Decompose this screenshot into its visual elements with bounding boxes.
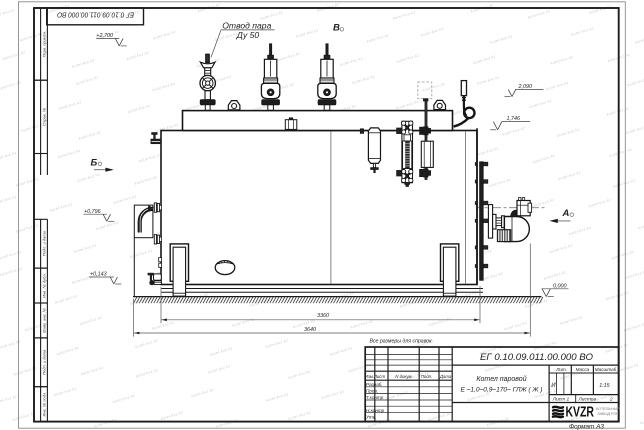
svg-text:Разраб.: Разраб. [366,382,383,387]
svg-text:В: В [333,23,340,34]
svg-text:Б: Б [91,158,98,169]
svg-text:Инв. № подл.: Инв. № подл. [42,392,47,417]
svg-text:Масса: Масса [576,367,590,372]
svg-text:Н.контр: Н.контр [366,408,385,413]
svg-text:3640: 3640 [304,327,316,333]
svg-text:Лит.: Лит. [555,367,567,372]
svg-text:Формат А3: Формат А3 [569,424,604,430]
svg-text:Ду 50: Ду 50 [236,30,260,40]
svg-text:ЕГ 0.10.09.011.00.000 ВО: ЕГ 0.10.09.011.00.000 ВО [57,10,134,19]
svg-text:Подп. и дата: Подп. и дата [42,349,47,375]
svg-text:ЗАВОД РЗР: ЗАВОД РЗР [597,412,619,416]
svg-text:Взам. инв. №: Взам. инв. № [42,307,47,332]
svg-text:1:15: 1:15 [599,383,610,389]
svg-text:Лист 1: Лист 1 [552,397,570,403]
svg-text:Справ. №: Справ. № [42,107,47,126]
svg-text:Котел паровой: Котел паровой [476,375,526,383]
svg-text:Перв. примен.: Перв. примен. [42,31,47,58]
svg-text:Е –1,0–0,9–170– ГЛЖ ( Ж ): Е –1,0–0,9–170– ГЛЖ ( Ж ) [461,387,543,394]
svg-text:KVZR: KVZR [566,405,595,421]
svg-text:Масштаб: Масштаб [595,367,617,372]
svg-text:Пров.: Пров. [366,389,378,394]
svg-text:Дата: Дата [439,374,452,379]
svg-text:Инв. № дубл.: Инв. № дубл. [42,273,47,298]
svg-text:Изм.Лист: Изм.Лист [365,374,386,379]
svg-text:Все размеры для справок: Все размеры для справок [370,338,433,344]
svg-text:N докум.: N докум. [395,374,412,379]
svg-text:А: А [562,208,570,219]
svg-text:Утв.: Утв. [366,414,376,419]
svg-text:КОТЕЛЬНЫЙ: КОТЕЛЬНЫЙ [596,407,620,411]
svg-text:Т.контр: Т.контр [366,395,384,400]
svg-text:Отвод пара: Отвод пара [222,21,271,31]
svg-text:Подп.: Подп. [421,374,432,379]
svg-text:2: 2 [609,397,613,403]
svg-text:Подп. и дата: Подп. и дата [42,230,47,256]
svg-text:Листов: Листов [578,397,597,403]
svg-text:3360: 3360 [317,313,329,319]
svg-text:ЕГ 0.10.09.011.00.000 ВО: ЕГ 0.10.09.011.00.000 ВО [480,352,593,362]
svg-text:И: И [551,383,556,389]
